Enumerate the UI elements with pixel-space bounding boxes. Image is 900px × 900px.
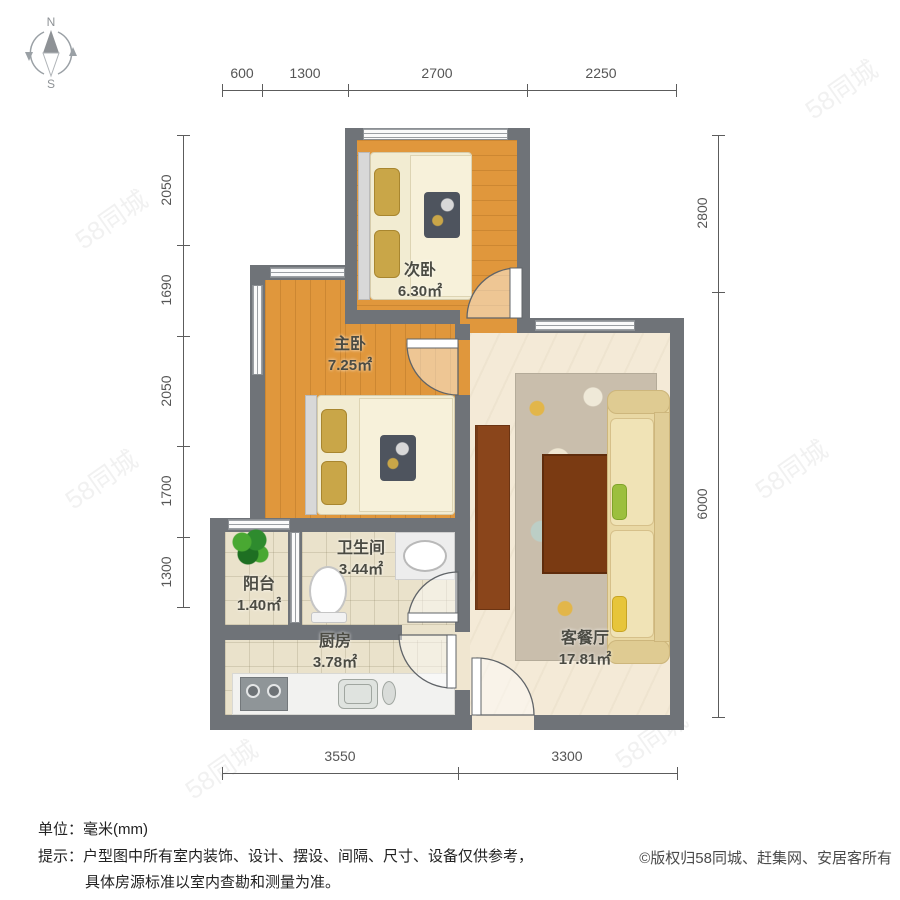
- tick: [177, 537, 190, 538]
- tip-text: 户型图中所有室内装饰、设计、摆设、间隔、尺寸、设备仅供参考，: [83, 848, 533, 865]
- room-label-balcony: 阳台 1.40㎡: [218, 574, 300, 616]
- door-swing: [399, 635, 452, 688]
- room-name: 卫生间: [305, 538, 417, 559]
- dimension-label: 2050: [158, 174, 174, 205]
- unit-note: 单位：毫米(mm): [38, 818, 148, 839]
- dimension-label: 3550: [324, 748, 355, 764]
- dimension-label: 2250: [585, 65, 616, 81]
- floorplan-page: 58同城 58同城 58同城 58同城 58同城 58同城 58同城 58同城 …: [0, 0, 900, 900]
- room-area: 3.78㎡: [265, 652, 405, 673]
- dimension-label: 2700: [421, 65, 452, 81]
- dimension-label: 1690: [158, 274, 174, 305]
- door-leaf: [472, 658, 481, 715]
- room-name: 客餐厅: [518, 628, 652, 649]
- tick: [527, 84, 528, 97]
- room-label-master-bedroom: 主卧 7.25㎡: [282, 334, 418, 376]
- room-area: 1.40㎡: [218, 595, 300, 616]
- floorplan: 次卧 6.30㎡ 主卧 7.25㎡ 卫生间 3.44㎡ 阳台 1.40㎡ 厨房 …: [210, 128, 695, 730]
- compass-icon: N S: [20, 12, 82, 90]
- dimension-line-bottom: [222, 773, 677, 774]
- room-name: 次卧: [360, 260, 480, 281]
- tick: [262, 84, 263, 97]
- tick: [177, 245, 190, 246]
- tick: [177, 607, 190, 608]
- tick: [177, 446, 190, 447]
- dimension-label: 600: [230, 65, 253, 81]
- door-leaf: [510, 268, 522, 318]
- room-label-second-bedroom: 次卧 6.30㎡: [360, 260, 480, 302]
- tick: [222, 767, 223, 780]
- tick: [458, 767, 459, 780]
- room-area: 3.44㎡: [305, 559, 417, 580]
- room-label-living-dining: 客餐厅 17.81㎡: [518, 628, 652, 670]
- dimension-label: 1300: [289, 65, 320, 81]
- tick: [712, 135, 725, 136]
- tick: [676, 84, 677, 97]
- dimension-line-right: [718, 135, 719, 717]
- room-name: 厨房: [265, 631, 405, 652]
- room-label-kitchen: 厨房 3.78㎡: [265, 631, 405, 673]
- dimension-label: 1300: [158, 556, 174, 587]
- tick: [222, 84, 223, 97]
- watermark: 58同城: [177, 730, 265, 807]
- svg-text:S: S: [47, 77, 55, 90]
- dimension-label: 2050: [158, 375, 174, 406]
- dimension-label: 6000: [694, 488, 710, 519]
- room-name: 阳台: [218, 574, 300, 595]
- svg-text:N: N: [47, 15, 56, 29]
- room-area: 6.30㎡: [360, 281, 480, 302]
- watermark: 58同城: [57, 440, 145, 517]
- door-leaf: [447, 635, 456, 688]
- tip-note-line2: 具体房源标准以室内查勘和测量为准。: [85, 871, 340, 892]
- tick: [677, 767, 678, 780]
- tip-note-line1: 提示：户型图中所有室内装饰、设计、摆设、间隔、尺寸、设备仅供参考，: [38, 845, 533, 866]
- dimension-label: 2800: [694, 197, 710, 228]
- tick: [348, 84, 349, 97]
- door-leaf: [408, 613, 458, 622]
- copyright-note: ©版权归58同城、赶集网、安居客所有: [639, 847, 892, 868]
- dimension-label: 3300: [551, 748, 582, 764]
- room-label-bathroom: 卫生间 3.44㎡: [305, 538, 417, 580]
- dimension-line-top: [222, 90, 676, 91]
- watermark: 58同城: [67, 180, 155, 257]
- watermark: 58同城: [747, 430, 835, 507]
- tick: [177, 135, 190, 136]
- room-area: 7.25㎡: [282, 355, 418, 376]
- tick: [712, 292, 725, 293]
- room-name: 主卧: [282, 334, 418, 355]
- watermark: 58同城: [797, 50, 885, 127]
- room-area: 17.81㎡: [518, 649, 652, 670]
- tip-prefix: 提示：: [38, 848, 83, 865]
- tick: [712, 717, 725, 718]
- tick: [177, 336, 190, 337]
- dimension-label: 1700: [158, 475, 174, 506]
